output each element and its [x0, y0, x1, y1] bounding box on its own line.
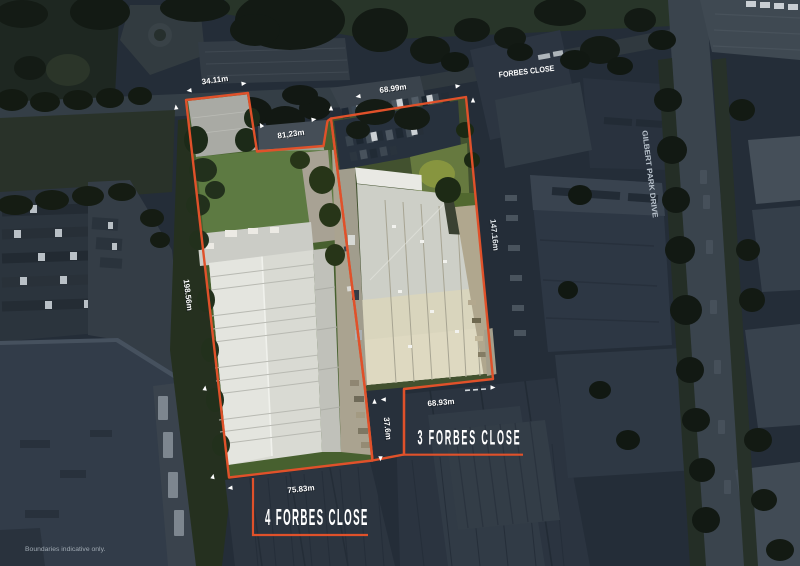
svg-text:4 FORBES CLOSE: 4 FORBES CLOSE — [265, 504, 369, 530]
svg-text:3 FORBES CLOSE: 3 FORBES CLOSE — [418, 426, 522, 449]
svg-text:Boundaries indicative only.: Boundaries indicative only. — [25, 546, 105, 553]
